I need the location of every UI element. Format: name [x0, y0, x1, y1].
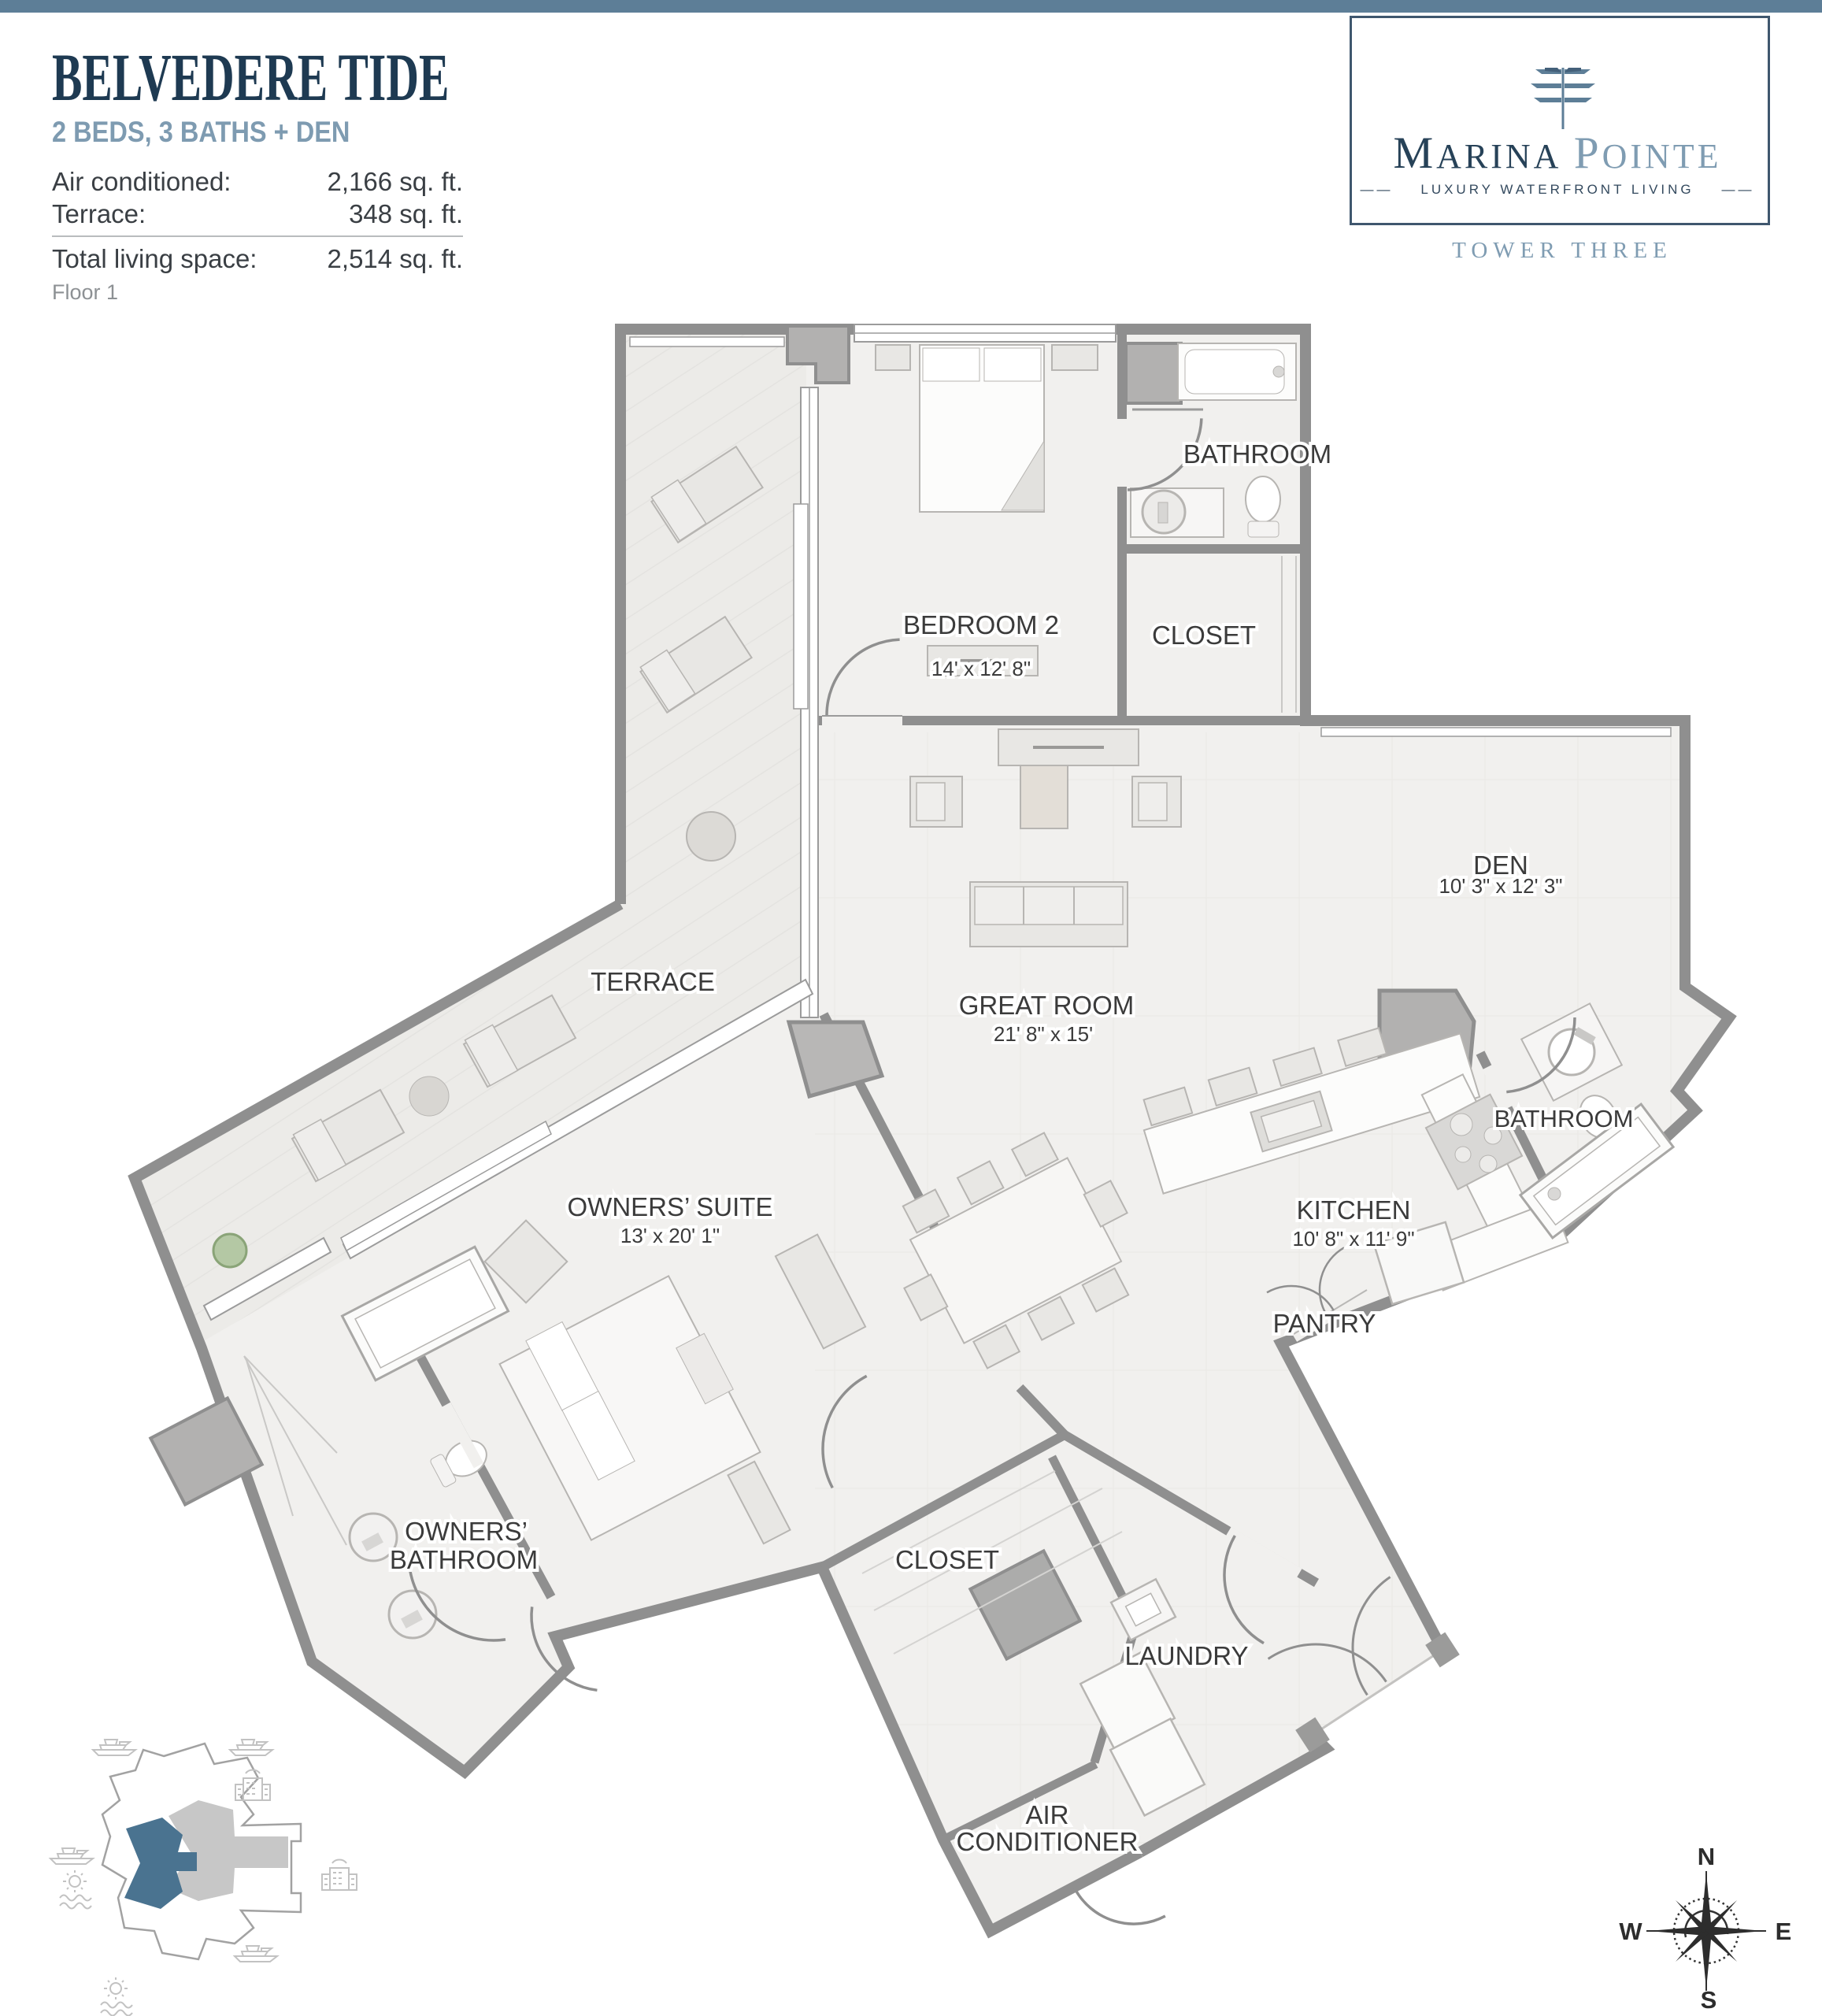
- svg-text:BATHROOM: BATHROOM: [1183, 439, 1331, 469]
- svg-text:BEDROOM 2: BEDROOM 2: [903, 610, 1059, 639]
- svg-text:13' x 20' 1": 13' x 20' 1": [620, 1224, 720, 1247]
- svg-text:CLOSET: CLOSET: [895, 1545, 999, 1574]
- svg-text:21' 8" x 15': 21' 8" x 15': [994, 1022, 1093, 1046]
- svg-text:PANTRY: PANTRY: [1273, 1309, 1376, 1338]
- svg-text:BATHROOM: BATHROOM: [1494, 1105, 1634, 1132]
- svg-text:CONDITIONER: CONDITIONER: [957, 1827, 1139, 1856]
- svg-text:N: N: [1698, 1843, 1715, 1870]
- svg-text:GREAT ROOM: GREAT ROOM: [959, 991, 1134, 1020]
- svg-text:S: S: [1701, 1986, 1717, 2014]
- svg-text:10' 3" x 12' 3": 10' 3" x 12' 3": [1439, 874, 1562, 898]
- svg-text:KITCHEN: KITCHEN: [1297, 1195, 1411, 1225]
- svg-text:14' x 12' 8": 14' x 12' 8": [931, 657, 1031, 680]
- svg-text:TERRACE: TERRACE: [591, 967, 715, 996]
- svg-text:AIR: AIR: [1025, 1800, 1068, 1829]
- svg-text:OWNERS’: OWNERS’: [405, 1517, 528, 1546]
- svg-text:BATHROOM: BATHROOM: [390, 1545, 538, 1574]
- svg-text:E: E: [1776, 1918, 1792, 1945]
- svg-text:10' 8" x 11' 9": 10' 8" x 11' 9": [1292, 1227, 1414, 1251]
- svg-text:OWNERS’ SUITE: OWNERS’ SUITE: [568, 1192, 773, 1221]
- svg-text:LAUNDRY: LAUNDRY: [1124, 1641, 1248, 1670]
- svg-text:CLOSET: CLOSET: [1152, 621, 1256, 650]
- svg-text:W: W: [1619, 1918, 1642, 1945]
